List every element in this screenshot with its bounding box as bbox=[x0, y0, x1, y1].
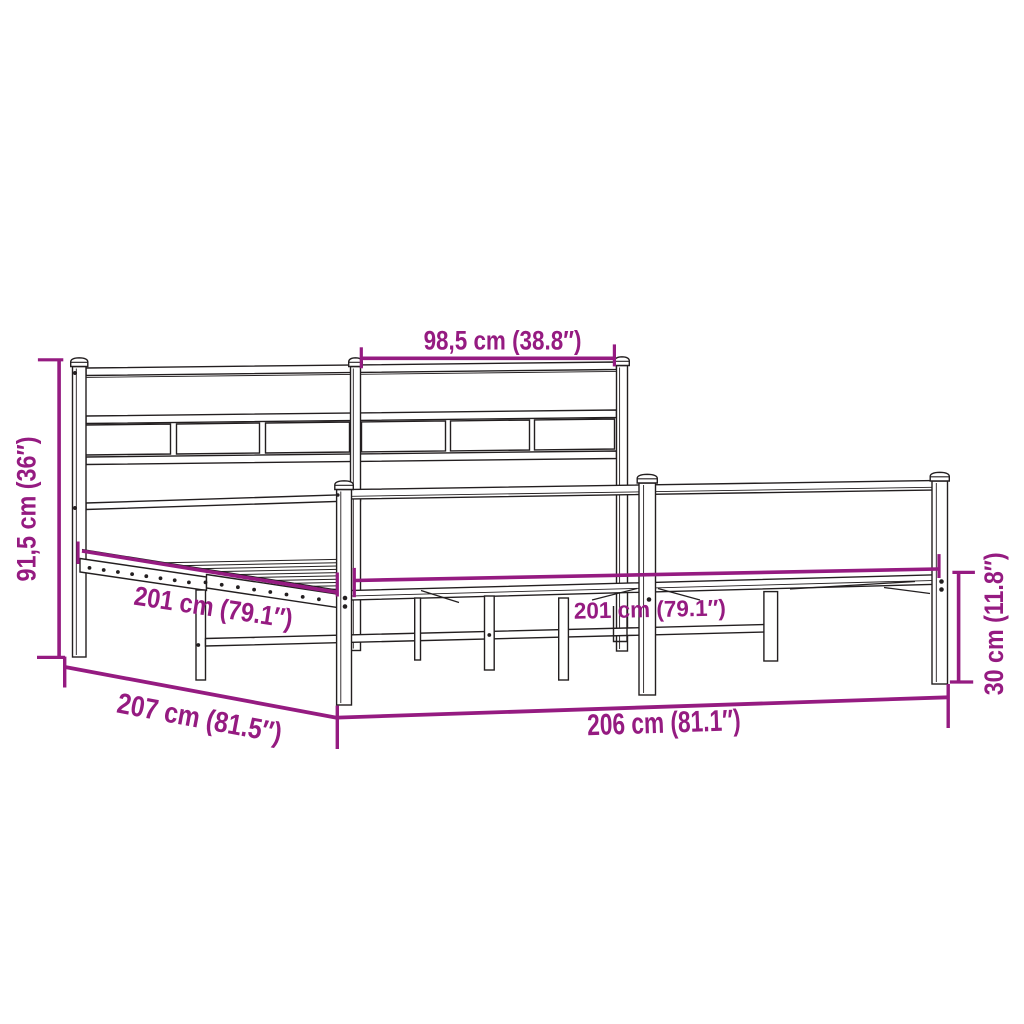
svg-text:206 cm (81.1″): 206 cm (81.1″) bbox=[587, 703, 742, 742]
svg-text:30 cm (11.8″): 30 cm (11.8″) bbox=[979, 552, 1009, 695]
svg-text:201 cm (79.1″): 201 cm (79.1″) bbox=[574, 594, 727, 623]
svg-text:91,5 cm (36″): 91,5 cm (36″) bbox=[12, 436, 42, 581]
svg-text:98,5 cm (38.8″): 98,5 cm (38.8″) bbox=[424, 327, 582, 356]
